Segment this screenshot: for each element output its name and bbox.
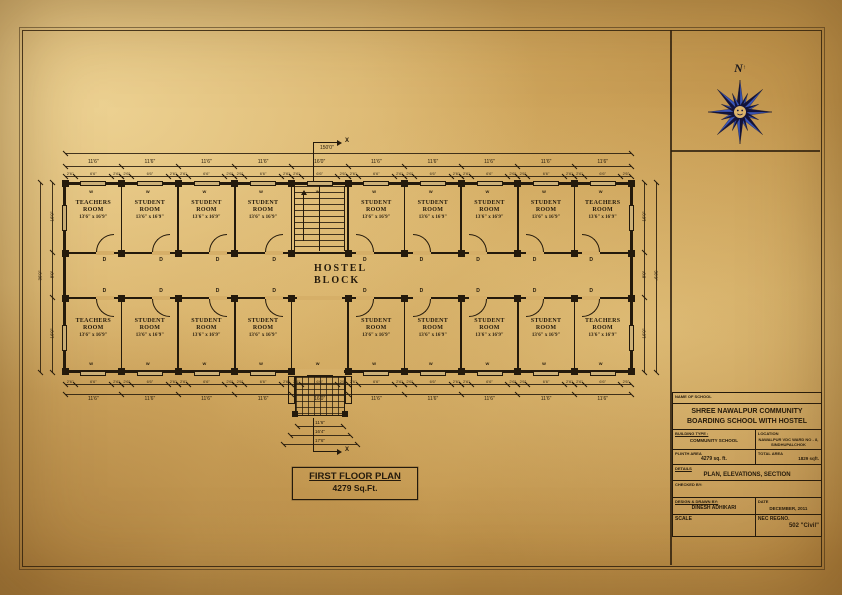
partition-wall bbox=[460, 185, 462, 252]
dim-label-small: 2'6" bbox=[403, 379, 417, 384]
column bbox=[458, 180, 465, 187]
door-label: D bbox=[216, 257, 220, 263]
column bbox=[401, 180, 408, 187]
column bbox=[118, 295, 125, 302]
dim-label-small: 6'6" bbox=[426, 171, 440, 176]
column bbox=[458, 295, 465, 302]
hostel-block-label: HOSTEL BLOCK bbox=[292, 263, 424, 287]
column bbox=[231, 180, 238, 187]
column bbox=[628, 295, 635, 302]
dim-label-small: 2'6" bbox=[63, 379, 77, 384]
building-type-value: COMMUNITY SCHOOL bbox=[675, 438, 753, 443]
door-label: D bbox=[589, 288, 593, 294]
dim-label-small: 2'6" bbox=[233, 171, 247, 176]
window-label: W bbox=[146, 189, 150, 194]
partition-wall bbox=[574, 299, 576, 370]
section-line bbox=[313, 451, 337, 452]
window bbox=[250, 181, 276, 186]
column bbox=[628, 180, 635, 187]
partition-wall bbox=[121, 185, 123, 252]
room: STUDENTROOM13'6" x 16'9" bbox=[407, 318, 460, 338]
door-arc bbox=[96, 234, 114, 252]
room-size: 13'6" x 16'9" bbox=[180, 333, 233, 338]
section-label: X bbox=[345, 138, 349, 144]
door-arc bbox=[582, 234, 600, 252]
dim-label: 11'6" bbox=[65, 396, 122, 402]
dim-label: 11'6" bbox=[405, 396, 462, 402]
column bbox=[571, 250, 578, 257]
room-size: 13'6" x 16'9" bbox=[124, 215, 177, 220]
window-label: W bbox=[259, 361, 263, 366]
dim-label: 11'6" bbox=[235, 396, 292, 402]
column bbox=[401, 368, 408, 375]
room-name: ROOM bbox=[237, 207, 290, 214]
column bbox=[458, 250, 465, 257]
dim-label: 16'0" bbox=[291, 396, 348, 402]
door-arc bbox=[413, 234, 431, 252]
room-name: ROOM bbox=[124, 325, 177, 332]
stair-arrow-head bbox=[301, 190, 307, 195]
details-label: DETAILS bbox=[675, 466, 819, 471]
window bbox=[533, 181, 559, 186]
room-size: 13'6" x 16'9" bbox=[407, 215, 460, 220]
dim-label-small: 6'6" bbox=[596, 379, 610, 384]
dim-label: 11'6" bbox=[348, 396, 405, 402]
dim-label-small: 6'6" bbox=[313, 171, 327, 176]
window bbox=[250, 371, 276, 376]
dim-label-small: 6'6" bbox=[596, 171, 610, 176]
window-label: W bbox=[372, 189, 376, 194]
room-name: STUDENT bbox=[180, 318, 233, 325]
window bbox=[629, 205, 634, 231]
window-label: W bbox=[599, 189, 603, 194]
dim-label-small: 2'6" bbox=[459, 379, 473, 384]
room-name: ROOM bbox=[180, 325, 233, 332]
door-label: D bbox=[159, 257, 163, 263]
door-label: D bbox=[159, 288, 163, 294]
plan-area: 4279 Sq.Ft. bbox=[293, 483, 417, 493]
room-name: ROOM bbox=[576, 325, 629, 332]
designed-by-value: DINESH ADHIKARI bbox=[675, 505, 753, 511]
room-name: TEACHERS bbox=[67, 200, 120, 207]
column bbox=[401, 250, 408, 257]
dim-label-small: 2'6" bbox=[459, 171, 473, 176]
room-size: 13'6" x 16'9" bbox=[237, 215, 290, 220]
door-label: D bbox=[363, 288, 367, 294]
dim-label: 36'9" bbox=[38, 261, 43, 291]
window-label: W bbox=[146, 361, 150, 366]
window bbox=[194, 371, 220, 376]
partition-wall bbox=[291, 299, 293, 370]
dim-label-small: 6'6" bbox=[200, 171, 214, 176]
door-label: D bbox=[589, 257, 593, 263]
column bbox=[62, 368, 69, 375]
window bbox=[363, 181, 389, 186]
room: STUDENTROOM13'6" x 16'9" bbox=[180, 200, 233, 220]
dim-tick bbox=[62, 151, 68, 157]
dim-label-small: 6'6" bbox=[86, 171, 100, 176]
room-name: STUDENT bbox=[463, 200, 516, 207]
door-arc bbox=[356, 234, 374, 252]
location-label: LOCATION bbox=[758, 431, 819, 436]
dim-label-small: 6'6" bbox=[369, 379, 383, 384]
room-size: 13'6" x 16'9" bbox=[350, 333, 403, 338]
window bbox=[80, 181, 106, 186]
partition-wall bbox=[234, 299, 236, 370]
dim-label: 16'4" bbox=[290, 429, 350, 434]
room: TEACHERSROOM13'6" x 16'9" bbox=[67, 200, 120, 220]
window bbox=[420, 181, 446, 186]
column bbox=[175, 250, 182, 257]
window-label: W bbox=[486, 189, 490, 194]
room-name: STUDENT bbox=[237, 200, 290, 207]
column bbox=[514, 368, 521, 375]
column bbox=[118, 180, 125, 187]
door-arc bbox=[152, 234, 170, 252]
window-label: W bbox=[599, 361, 603, 366]
dim-label: 11'6" bbox=[461, 159, 518, 165]
partition-wall bbox=[291, 185, 293, 252]
column bbox=[118, 250, 125, 257]
dim-label: 11'6" bbox=[518, 396, 575, 402]
window-label: W bbox=[542, 361, 546, 366]
regno-value: 502 "Civil" bbox=[758, 523, 819, 529]
room-name: TEACHERS bbox=[67, 318, 120, 325]
dim-label-small: 6'6" bbox=[86, 379, 100, 384]
partition-wall bbox=[404, 299, 406, 370]
dim-label-small: 6'6" bbox=[313, 379, 327, 384]
room: TEACHERSROOM13'6" x 16'9" bbox=[576, 200, 629, 220]
window bbox=[80, 371, 106, 376]
dim-label-small: 6'6" bbox=[200, 379, 214, 384]
building-type-label: BUILDING TYPE : bbox=[675, 431, 753, 436]
dim-label: 11'6" bbox=[574, 159, 631, 165]
dim-label-small: 2'6" bbox=[120, 171, 134, 176]
column bbox=[345, 295, 352, 302]
window-label: W bbox=[486, 361, 490, 366]
door-label: D bbox=[103, 257, 107, 263]
room-name: ROOM bbox=[180, 207, 233, 214]
door-arc bbox=[413, 299, 431, 317]
dim-label-small: 2'6" bbox=[289, 171, 303, 176]
room: STUDENTROOM13'6" x 16'9" bbox=[124, 318, 177, 338]
room-name: ROOM bbox=[576, 207, 629, 214]
room-size: 13'6" x 16'9" bbox=[124, 333, 177, 338]
dim-tick bbox=[641, 370, 647, 376]
plinth-area-value: 4279 sq. ft. bbox=[675, 456, 753, 462]
window-label: W bbox=[429, 189, 433, 194]
door-label: D bbox=[272, 288, 276, 294]
door-arc bbox=[265, 299, 283, 317]
column bbox=[401, 295, 408, 302]
window bbox=[137, 371, 163, 376]
room-name: ROOM bbox=[124, 207, 177, 214]
column bbox=[231, 250, 238, 257]
column bbox=[571, 368, 578, 375]
dim-label-small: 2'6" bbox=[346, 379, 360, 384]
window-label: W bbox=[203, 361, 207, 366]
window-label: W bbox=[316, 361, 320, 366]
dim-label-small: 2'6" bbox=[572, 171, 586, 176]
room-name: ROOM bbox=[520, 207, 573, 214]
dim-label-small: 2'6" bbox=[516, 171, 530, 176]
window bbox=[363, 371, 389, 376]
room-name: STUDENT bbox=[407, 318, 460, 325]
door-label: D bbox=[420, 288, 424, 294]
date-value: DECEMBER, 2011 bbox=[758, 506, 819, 511]
room-size: 13'6" x 16'9" bbox=[67, 333, 120, 338]
dim-label: 8'0" bbox=[50, 259, 55, 289]
room: STUDENTROOM13'6" x 16'9" bbox=[463, 200, 516, 220]
dim-label-small: 6'6" bbox=[143, 379, 157, 384]
dim-label-small: 6'6" bbox=[426, 379, 440, 384]
name-of-school-label: NAME OF SCHOOL bbox=[673, 393, 821, 400]
dim-label: 11'6" bbox=[122, 396, 179, 402]
column bbox=[175, 180, 182, 187]
window bbox=[477, 371, 503, 376]
door-label: D bbox=[103, 288, 107, 294]
column bbox=[345, 368, 352, 375]
title-block: NAME OF SCHOOL SHREE NAWALPUR COMMUNITY … bbox=[672, 392, 822, 537]
room-size: 13'6" x 16'9" bbox=[407, 333, 460, 338]
door-arc bbox=[152, 299, 170, 317]
partition-wall bbox=[460, 299, 462, 370]
partition-wall bbox=[234, 185, 236, 252]
partition-wall bbox=[177, 185, 179, 252]
column bbox=[118, 368, 125, 375]
section-label: X bbox=[345, 447, 349, 453]
entrance-gap bbox=[295, 369, 344, 375]
room-name: ROOM bbox=[407, 325, 460, 332]
room-name: ROOM bbox=[407, 207, 460, 214]
room-size: 13'6" x 16'9" bbox=[237, 333, 290, 338]
room-size: 13'6" x 16'9" bbox=[180, 215, 233, 220]
column bbox=[514, 250, 521, 257]
dim-label: 16'9" bbox=[50, 318, 55, 348]
room-size: 13'6" x 16'9" bbox=[463, 333, 516, 338]
room-size: 13'6" x 16'9" bbox=[463, 215, 516, 220]
dim-label: 11'6" bbox=[65, 159, 122, 165]
room-name: ROOM bbox=[463, 207, 516, 214]
column bbox=[62, 180, 69, 187]
window bbox=[137, 181, 163, 186]
column bbox=[62, 295, 69, 302]
room-size: 13'6" x 16'9" bbox=[520, 333, 573, 338]
regno-label: NEC REGNO. bbox=[758, 516, 819, 522]
dim-label: 11'6" bbox=[461, 396, 518, 402]
column bbox=[288, 295, 295, 302]
dim-label-small: 2'6" bbox=[346, 171, 360, 176]
room-name: STUDENT bbox=[520, 200, 573, 207]
dim-label: 11'6" bbox=[405, 159, 462, 165]
column bbox=[288, 368, 295, 375]
window bbox=[420, 371, 446, 376]
dim-line bbox=[65, 153, 631, 154]
dim-label-small: 2'6" bbox=[289, 379, 303, 384]
window bbox=[194, 181, 220, 186]
window bbox=[590, 371, 616, 376]
dim-label-small: 2'6" bbox=[572, 379, 586, 384]
column bbox=[231, 295, 238, 302]
room-name: STUDENT bbox=[124, 318, 177, 325]
window-label: W bbox=[89, 189, 93, 194]
room: STUDENTROOM13'6" x 16'9" bbox=[237, 318, 290, 338]
window-label: W bbox=[542, 189, 546, 194]
dim-line bbox=[283, 444, 357, 445]
column bbox=[628, 250, 635, 257]
column bbox=[175, 368, 182, 375]
room: STUDENTROOM13'6" x 16'9" bbox=[407, 200, 460, 220]
window-label: W bbox=[429, 361, 433, 366]
partition-wall bbox=[404, 185, 406, 252]
dim-label-small: 2'6" bbox=[619, 171, 633, 176]
room-name: ROOM bbox=[350, 325, 403, 332]
partition-wall bbox=[347, 299, 349, 370]
dim-line bbox=[297, 426, 343, 427]
room-size: 13'6" x 16'9" bbox=[576, 215, 629, 220]
room: STUDENTROOM13'6" x 16'9" bbox=[463, 318, 516, 338]
dim-label: 17'6" bbox=[283, 438, 357, 443]
hostel-block-label-line1: HOSTEL bbox=[314, 263, 424, 275]
column bbox=[175, 295, 182, 302]
door-label: D bbox=[533, 288, 537, 294]
dim-line bbox=[290, 435, 350, 436]
partition-wall bbox=[121, 299, 123, 370]
dim-label: 11'6" bbox=[235, 159, 292, 165]
dim-label-small: 2'6" bbox=[176, 171, 190, 176]
partition-wall bbox=[347, 185, 349, 252]
designed-by-label: DESIGN & DRAWN BY: bbox=[675, 499, 753, 504]
stair-arrow bbox=[303, 194, 304, 241]
dim-label: 11'6" bbox=[348, 159, 405, 165]
partition-wall bbox=[574, 185, 576, 252]
door-label: D bbox=[216, 288, 220, 294]
room: STUDENTROOM13'6" x 16'9" bbox=[124, 200, 177, 220]
room: STUDENTROOM13'6" x 16'9" bbox=[350, 318, 403, 338]
room-name: ROOM bbox=[67, 207, 120, 214]
stair-rail bbox=[319, 186, 320, 251]
room-size: 13'6" x 16'9" bbox=[576, 333, 629, 338]
door-arc bbox=[582, 299, 600, 317]
door-label: D bbox=[476, 257, 480, 263]
dim-label: 8'0" bbox=[642, 259, 647, 289]
dim-label: 11'6" bbox=[178, 159, 235, 165]
section-arrow bbox=[337, 140, 342, 146]
column bbox=[628, 368, 635, 375]
location-value: NAWALPUR VDC WARD NO - 8, SINDHUPALCHOK bbox=[758, 437, 819, 447]
partition-wall bbox=[177, 299, 179, 370]
door-arc bbox=[209, 234, 227, 252]
hostel-block-label-line2: BLOCK bbox=[314, 275, 424, 287]
room-name: STUDENT bbox=[350, 318, 403, 325]
room-name: STUDENT bbox=[350, 200, 403, 207]
partition-wall bbox=[517, 185, 519, 252]
dim-label-small: 2'6" bbox=[120, 379, 134, 384]
plan-title-box: FIRST FLOOR PLAN 4279 Sq.Ft. bbox=[292, 467, 418, 500]
dim-label-small: 2'6" bbox=[63, 171, 77, 176]
dim-label: 11'6" bbox=[122, 159, 179, 165]
window bbox=[477, 181, 503, 186]
window-label: W bbox=[372, 361, 376, 366]
room-name: ROOM bbox=[67, 325, 120, 332]
room: STUDENTROOM13'6" x 16'9" bbox=[237, 200, 290, 220]
room-name: STUDENT bbox=[520, 318, 573, 325]
dim-label: 36'9" bbox=[654, 261, 659, 291]
door-label: D bbox=[533, 257, 537, 263]
room-name: STUDENT bbox=[180, 200, 233, 207]
door-arc bbox=[96, 299, 114, 317]
plan-title: FIRST FLOOR PLAN bbox=[293, 471, 417, 482]
room-name: ROOM bbox=[237, 325, 290, 332]
door-arc bbox=[356, 299, 374, 317]
door-arc bbox=[469, 234, 487, 252]
dim-tick bbox=[49, 370, 55, 376]
school-name: SHREE NAWALPUR COMMUNITY BOARDING SCHOOL… bbox=[673, 404, 821, 430]
dim-label: 150'0" bbox=[320, 145, 334, 151]
room-size: 13'6" x 16'9" bbox=[67, 215, 120, 220]
room: STUDENTROOM13'6" x 16'9" bbox=[520, 318, 573, 338]
section-arrow bbox=[337, 449, 342, 455]
dim-label-small: 6'6" bbox=[539, 379, 553, 384]
dim-tick bbox=[280, 442, 286, 448]
column bbox=[231, 368, 238, 375]
dim-label-small: 6'6" bbox=[483, 379, 497, 384]
dim-label: 11'6" bbox=[178, 396, 235, 402]
room-name: TEACHERS bbox=[576, 200, 629, 207]
dim-label: 16'9" bbox=[642, 318, 647, 348]
dim-label-small: 2'6" bbox=[176, 379, 190, 384]
room-name: STUDENT bbox=[463, 318, 516, 325]
column bbox=[342, 411, 348, 417]
dim-label: 11'6" bbox=[574, 396, 631, 402]
entrance-gap bbox=[297, 296, 342, 300]
window bbox=[629, 325, 634, 351]
dim-label-small: 2'6" bbox=[403, 171, 417, 176]
dim-label-small: 6'6" bbox=[483, 171, 497, 176]
room-name: STUDENT bbox=[407, 200, 460, 207]
door-arc bbox=[526, 299, 544, 317]
room-name: STUDENT bbox=[237, 318, 290, 325]
room: TEACHERSROOM13'6" x 16'9" bbox=[67, 318, 120, 338]
dim-label: 16'0" bbox=[291, 159, 348, 165]
partition-wall bbox=[517, 299, 519, 370]
door-arc bbox=[209, 299, 227, 317]
room-name: STUDENT bbox=[124, 200, 177, 207]
dim-label-small: 2'6" bbox=[516, 379, 530, 384]
window bbox=[590, 181, 616, 186]
column bbox=[571, 295, 578, 302]
door-label: D bbox=[272, 257, 276, 263]
dim-label: 16'9" bbox=[642, 202, 647, 232]
door-label: D bbox=[476, 288, 480, 294]
column bbox=[571, 180, 578, 187]
total-area-value: 1829 sqft. bbox=[758, 456, 819, 461]
column bbox=[292, 411, 298, 417]
room-name: ROOM bbox=[520, 325, 573, 332]
dim-tick bbox=[653, 370, 659, 376]
column bbox=[345, 250, 352, 257]
dim-label-small: 6'6" bbox=[256, 171, 270, 176]
dim-label-small: 2'6" bbox=[619, 379, 633, 384]
details-value: PLAN, ELEVATIONS, SECTION bbox=[675, 472, 819, 478]
dim-label: 16'9" bbox=[50, 202, 55, 232]
room-name: ROOM bbox=[463, 325, 516, 332]
column bbox=[514, 180, 521, 187]
door-arc bbox=[469, 299, 487, 317]
room: TEACHERSROOM13'6" x 16'9" bbox=[576, 318, 629, 338]
door-arc bbox=[265, 234, 283, 252]
dim-label-small: 6'6" bbox=[256, 379, 270, 384]
